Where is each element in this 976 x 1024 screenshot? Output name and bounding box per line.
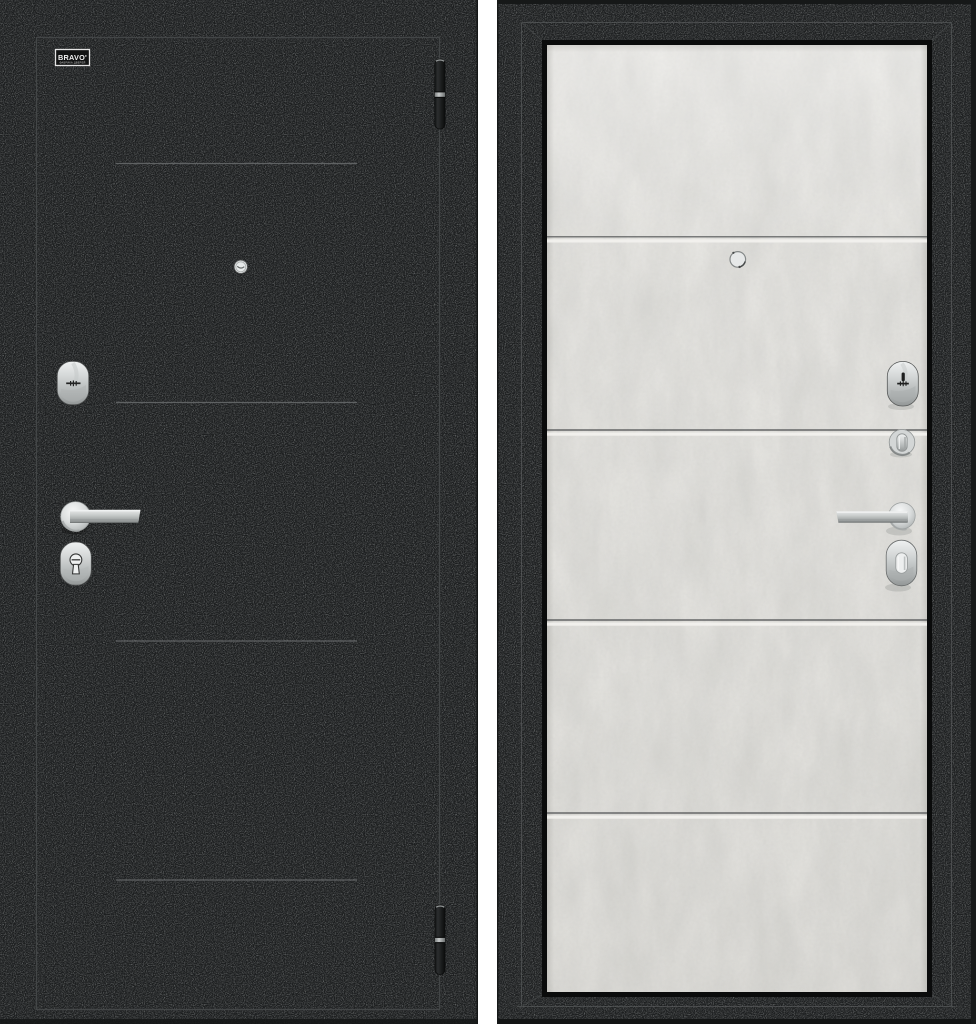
svg-text:ФАБРИКА ДВЕРЕЙ: ФАБРИКА ДВЕРЕЙ — [59, 62, 85, 65]
svg-text:BRAVO': BRAVO' — [58, 53, 87, 62]
